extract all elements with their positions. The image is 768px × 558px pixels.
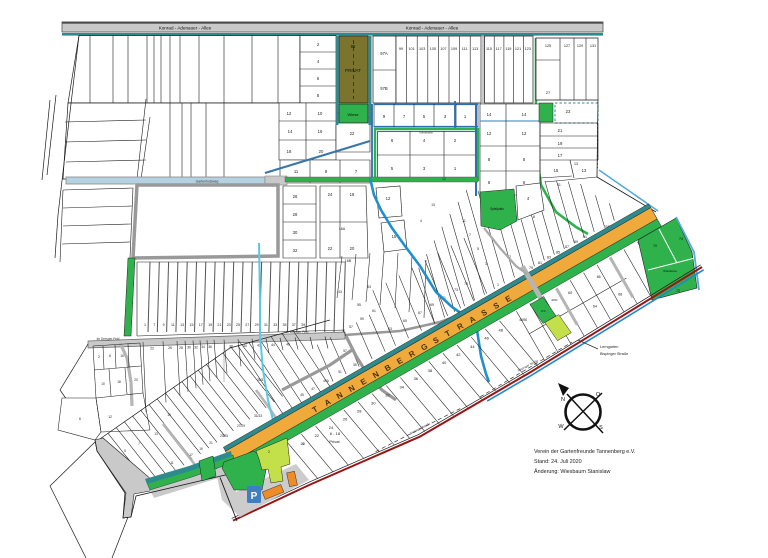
- svg-text:Verein der Gartenfreunde Tanne: Verein der Gartenfreunde Tannenberg e.V.: [534, 449, 635, 455]
- svg-text:14: 14: [522, 112, 527, 117]
- svg-text:129: 129: [577, 44, 583, 48]
- svg-text:27: 27: [245, 323, 249, 327]
- svg-text:7: 7: [153, 323, 155, 327]
- svg-text:44: 44: [271, 343, 275, 347]
- svg-text:Im Dresper Feld: Im Dresper Feld: [97, 337, 120, 341]
- svg-text:15: 15: [554, 168, 559, 173]
- svg-text:10: 10: [318, 111, 323, 116]
- svg-text:21: 21: [209, 441, 213, 445]
- svg-text:2: 2: [98, 355, 100, 359]
- svg-text:107: 107: [440, 47, 446, 51]
- svg-text:11: 11: [294, 169, 299, 174]
- svg-text:23: 23: [566, 109, 571, 114]
- svg-text:70: 70: [653, 244, 657, 248]
- svg-text:109: 109: [451, 47, 457, 51]
- svg-text:22: 22: [328, 246, 333, 251]
- svg-text:34: 34: [399, 384, 404, 389]
- svg-text:16B: 16B: [345, 259, 352, 263]
- svg-text:33: 33: [273, 323, 277, 327]
- svg-text:11: 11: [462, 219, 466, 223]
- svg-text:60: 60: [568, 291, 572, 295]
- svg-text:O: O: [596, 392, 601, 398]
- svg-text:W: W: [558, 424, 564, 430]
- svg-text:17: 17: [189, 453, 193, 457]
- svg-text:5: 5: [124, 449, 126, 453]
- svg-text:53: 53: [367, 285, 371, 289]
- svg-text:67: 67: [418, 311, 422, 315]
- svg-text:P: P: [251, 491, 258, 502]
- svg-text:22: 22: [315, 433, 320, 438]
- svg-text:79: 79: [529, 266, 533, 270]
- svg-text:125: 125: [545, 44, 551, 48]
- svg-text:28: 28: [293, 212, 298, 217]
- svg-text:127: 127: [564, 44, 570, 48]
- svg-text:11: 11: [170, 461, 174, 465]
- svg-text:73: 73: [454, 288, 458, 292]
- svg-text:18: 18: [350, 192, 355, 197]
- svg-text:Privat.: Privat.: [329, 439, 340, 444]
- svg-text:1: 1: [144, 323, 146, 327]
- svg-text:N: N: [561, 397, 565, 403]
- svg-text:21: 21: [558, 128, 563, 133]
- svg-text:34: 34: [201, 345, 205, 349]
- svg-text:30: 30: [293, 230, 298, 235]
- svg-text:Ohlefarene: Ohlefarene: [663, 269, 677, 273]
- svg-text:131: 131: [590, 44, 596, 48]
- svg-text:24: 24: [328, 192, 333, 197]
- svg-text:36: 36: [208, 345, 212, 349]
- svg-text:12: 12: [108, 415, 112, 419]
- svg-text:16A: 16A: [339, 227, 346, 231]
- svg-text:Wiese: Wiese: [347, 112, 359, 117]
- svg-text:101: 101: [408, 47, 414, 51]
- svg-text:61: 61: [372, 309, 376, 313]
- svg-text:Lerngarten: Lerngarten: [600, 345, 618, 349]
- svg-text:30: 30: [371, 401, 376, 406]
- svg-text:12: 12: [487, 131, 492, 136]
- svg-text:11: 11: [171, 323, 175, 327]
- svg-text:19: 19: [208, 323, 212, 327]
- svg-text:19: 19: [558, 141, 563, 146]
- svg-text:47: 47: [311, 387, 315, 391]
- svg-text:55: 55: [353, 363, 357, 367]
- svg-text:49A: 49A: [323, 379, 330, 383]
- svg-text:5: 5: [477, 247, 479, 251]
- svg-text:Änderung: Wiesbaum Stanislaw: Änderung: Wiesbaum Stanislaw: [534, 468, 611, 475]
- svg-text:D D: D D: [541, 309, 546, 313]
- svg-text:115: 115: [486, 47, 492, 51]
- svg-text:81: 81: [538, 261, 542, 265]
- svg-text:13: 13: [582, 168, 587, 173]
- svg-text:69: 69: [430, 303, 434, 307]
- svg-text:14: 14: [288, 129, 293, 134]
- svg-text:121: 121: [515, 47, 521, 51]
- svg-text:30: 30: [187, 346, 191, 350]
- svg-text:48/90: 48/90: [551, 299, 558, 302]
- svg-text:89: 89: [574, 240, 578, 244]
- svg-text:27: 27: [546, 90, 551, 95]
- svg-text:83: 83: [547, 256, 551, 260]
- svg-text:18: 18: [287, 149, 292, 154]
- svg-text:97B: 97B: [380, 86, 388, 91]
- svg-text:21: 21: [217, 323, 221, 327]
- svg-text:14: 14: [487, 112, 492, 117]
- svg-text:11: 11: [557, 183, 561, 187]
- svg-text:6: 6: [109, 354, 111, 358]
- svg-text:Konrad - Adenauer - Allee: Konrad - Adenauer - Allee: [406, 26, 459, 31]
- svg-text:64: 64: [593, 305, 597, 309]
- svg-text:72: 72: [676, 289, 680, 293]
- svg-text:26: 26: [168, 346, 172, 350]
- svg-text:9: 9: [163, 323, 165, 327]
- svg-text:20: 20: [350, 246, 355, 251]
- svg-text:Konrad - Adenauer - Allee: Konrad - Adenauer - Allee: [159, 26, 212, 31]
- svg-text:10: 10: [101, 382, 105, 386]
- svg-text:25: 25: [236, 323, 240, 327]
- svg-text:42: 42: [456, 352, 461, 357]
- svg-text:68: 68: [618, 292, 622, 296]
- svg-text:15: 15: [190, 323, 194, 327]
- svg-text:PRIVAT: PRIVAT: [345, 68, 361, 73]
- svg-text:32: 32: [385, 392, 390, 397]
- svg-text:7: 7: [138, 442, 140, 446]
- svg-text:44: 44: [470, 344, 475, 349]
- svg-text:8: 8: [533, 215, 535, 219]
- svg-text:45: 45: [300, 393, 304, 397]
- svg-text:20: 20: [319, 149, 324, 154]
- svg-text:63: 63: [388, 327, 392, 331]
- svg-text:31/33: 31/33: [254, 414, 262, 418]
- svg-text:38: 38: [428, 368, 433, 373]
- svg-text:17: 17: [558, 153, 563, 158]
- svg-text:43: 43: [338, 290, 342, 294]
- svg-text:39: 39: [301, 323, 305, 327]
- svg-text:27/29: 27/29: [237, 424, 245, 428]
- svg-text:59: 59: [360, 317, 364, 321]
- svg-text:22: 22: [150, 347, 154, 351]
- svg-text:85: 85: [556, 250, 560, 254]
- svg-text:7: 7: [469, 233, 471, 237]
- svg-text:12: 12: [386, 196, 391, 201]
- svg-text:87: 87: [565, 245, 569, 249]
- svg-text:1: 1: [497, 283, 499, 287]
- svg-text:65: 65: [403, 319, 407, 323]
- svg-text:23: 23: [227, 323, 231, 327]
- svg-text:26: 26: [293, 194, 298, 199]
- svg-text:66: 66: [597, 275, 601, 279]
- svg-text:S: S: [599, 425, 603, 431]
- svg-text:95: 95: [351, 44, 356, 49]
- svg-text:111: 111: [462, 47, 468, 51]
- svg-text:13: 13: [154, 432, 158, 436]
- svg-text:119: 119: [505, 47, 511, 51]
- svg-text:36: 36: [414, 376, 419, 381]
- svg-text:32: 32: [293, 248, 298, 253]
- svg-text:3: 3: [485, 262, 487, 266]
- svg-text:35: 35: [283, 323, 287, 327]
- svg-text:Spielplatz: Spielplatz: [490, 207, 504, 211]
- svg-text:74: 74: [679, 237, 683, 241]
- svg-text:28: 28: [357, 409, 362, 414]
- svg-text:26: 26: [343, 417, 348, 422]
- svg-text:28: 28: [179, 346, 183, 350]
- svg-text:4: 4: [302, 442, 304, 446]
- svg-text:12: 12: [522, 131, 527, 136]
- svg-text:Vohrstraße: Vohrstraße: [419, 131, 433, 135]
- svg-text:57: 57: [349, 325, 353, 329]
- svg-text:103: 103: [419, 47, 425, 51]
- svg-text:15: 15: [167, 413, 171, 417]
- svg-text:31: 31: [264, 323, 268, 327]
- svg-text:40: 40: [442, 360, 447, 365]
- svg-text:18: 18: [117, 380, 121, 384]
- svg-text:17: 17: [199, 323, 203, 327]
- svg-text:Im Dresper Feld: Im Dresper Feld: [286, 330, 309, 334]
- svg-text:Gartenholzweg: Gartenholzweg: [196, 180, 219, 184]
- svg-text:Bispinger Straße: Bispinger Straße: [600, 352, 628, 356]
- svg-text:113: 113: [472, 47, 478, 51]
- svg-text:123: 123: [525, 47, 531, 51]
- svg-text:51: 51: [338, 370, 342, 374]
- svg-text:19: 19: [199, 447, 203, 451]
- svg-text:2: 2: [268, 450, 270, 454]
- svg-text:117: 117: [496, 47, 502, 51]
- svg-text:4: 4: [420, 219, 422, 223]
- svg-text:16: 16: [120, 354, 124, 358]
- svg-text:46: 46: [484, 336, 489, 341]
- svg-text:75: 75: [464, 282, 468, 286]
- svg-text:Stand: 24. Juli 2020: Stand: 24. Juli 2020: [534, 459, 582, 465]
- svg-text:105: 105: [430, 47, 436, 51]
- svg-text:48: 48: [498, 328, 503, 333]
- svg-text:32: 32: [194, 345, 198, 349]
- svg-text:13: 13: [574, 162, 578, 166]
- svg-text:55: 55: [357, 303, 361, 307]
- svg-text:91: 91: [583, 235, 587, 239]
- svg-text:22: 22: [350, 131, 355, 136]
- svg-text:37: 37: [292, 323, 296, 327]
- svg-text:29: 29: [255, 323, 259, 327]
- svg-text:6: 6: [79, 417, 81, 421]
- svg-text:16: 16: [318, 129, 323, 134]
- svg-text:24: 24: [329, 425, 334, 430]
- svg-text:23/25: 23/25: [220, 434, 228, 438]
- svg-text:12: 12: [287, 111, 292, 116]
- svg-text:99: 99: [399, 47, 403, 51]
- svg-text:20: 20: [134, 378, 138, 382]
- svg-text:13: 13: [180, 323, 184, 327]
- svg-text:12: 12: [442, 177, 446, 181]
- svg-text:13: 13: [431, 203, 435, 207]
- svg-text:97A: 97A: [380, 51, 388, 56]
- svg-text:6 - 18: 6 - 18: [330, 431, 341, 436]
